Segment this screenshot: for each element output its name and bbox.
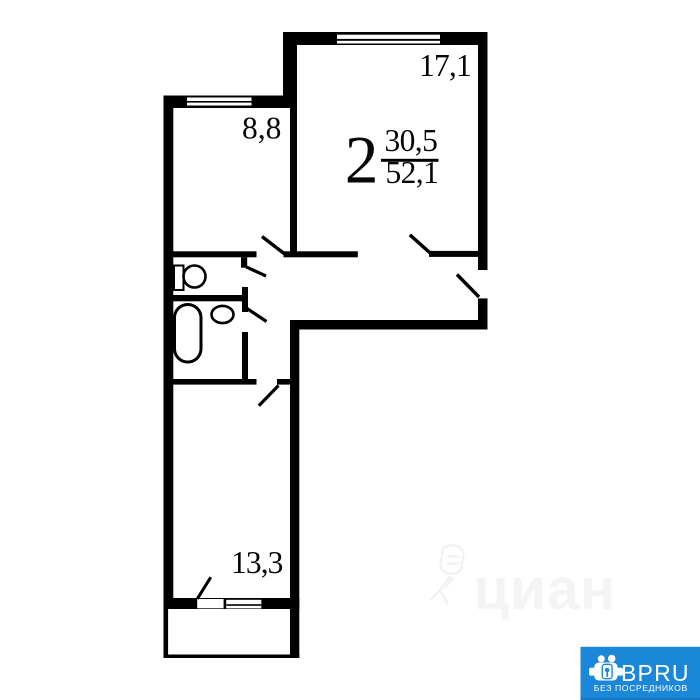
svg-text:циан: циан xyxy=(474,557,617,622)
svg-text:30,5: 30,5 xyxy=(385,123,438,158)
svg-text:БЕЗ ПОСРЕДНИКОВ: БЕЗ ПОСРЕДНИКОВ xyxy=(594,683,688,693)
svg-text:2: 2 xyxy=(345,123,379,198)
svg-text:52,1: 52,1 xyxy=(386,155,439,190)
svg-text:8,8: 8,8 xyxy=(242,111,281,146)
svg-text:13,3: 13,3 xyxy=(231,545,283,580)
svg-text:17,1: 17,1 xyxy=(419,48,471,83)
